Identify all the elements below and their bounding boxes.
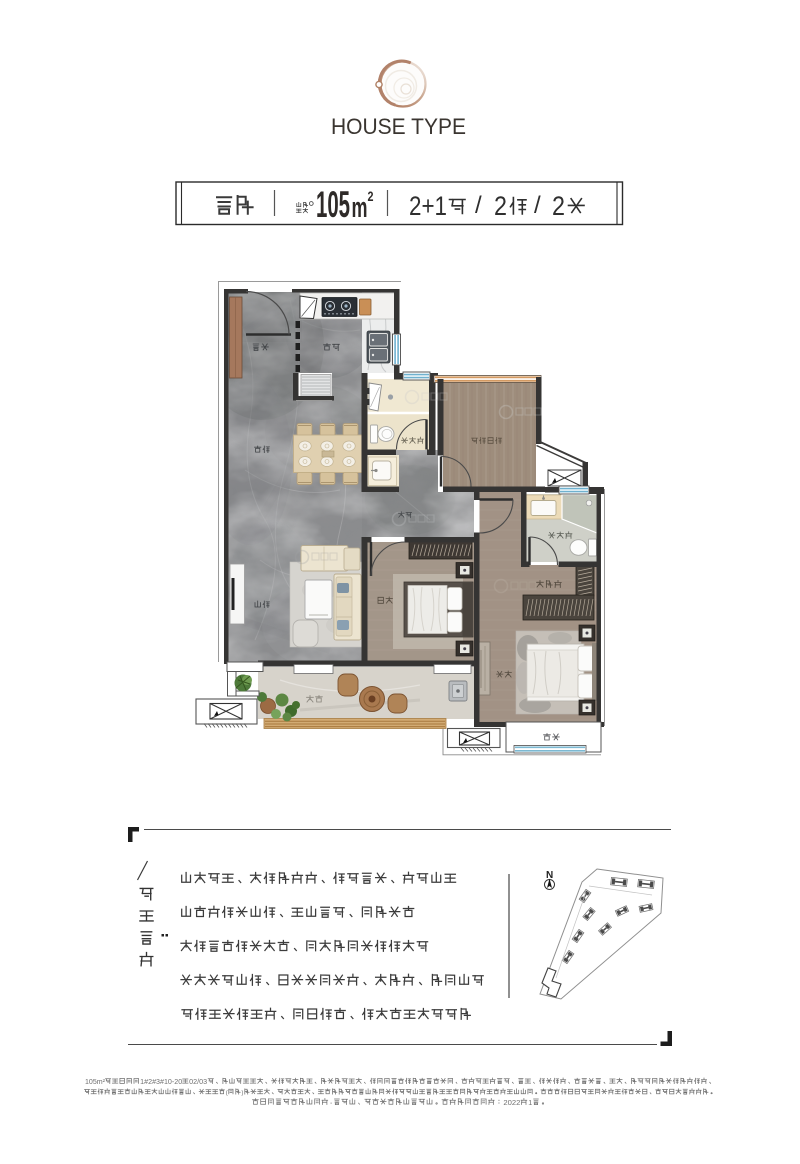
svg-text:105m²: 105m² [85,1079,106,1086]
svg-text:105: 105 [316,184,350,225]
svg-text:1: 1 [528,1098,532,1107]
svg-text:): ) [241,1090,243,1097]
svg-text:·: · [329,1098,333,1107]
svg-text:02/03: 02/03 [189,1079,207,1086]
svg-text:2022: 2022 [503,1098,520,1107]
svg-text:/: / [475,192,482,219]
svg-text:2+1: 2+1 [409,191,447,221]
svg-text:2: 2 [368,189,374,204]
svg-text:2: 2 [552,191,565,221]
svg-text:m: m [352,192,368,224]
svg-text:2: 2 [494,191,507,221]
svg-text:HOUSE TYPE: HOUSE TYPE [331,114,466,139]
svg-text:1#2#3#10-20: 1#2#3#10-20 [140,1079,182,1086]
svg-text:/: / [534,192,541,219]
